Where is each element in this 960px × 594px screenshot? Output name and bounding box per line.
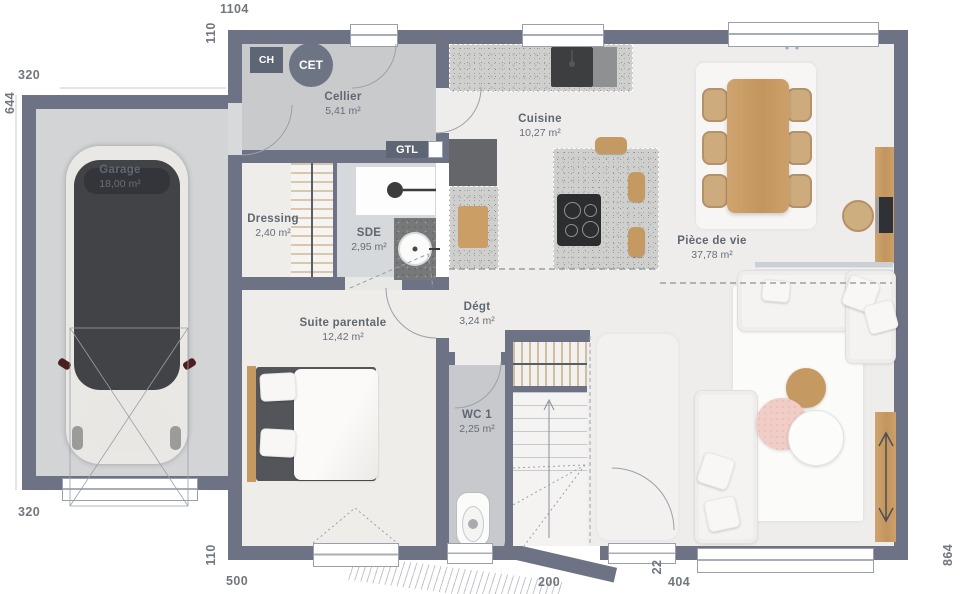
stairs-dashed-boundary [350,254,590,546]
spotlight-dots [786,47,799,50]
sideboard-arrows [879,433,893,521]
opening-direction-lines [313,465,585,546]
sink-faucet-icon [413,247,441,252]
door-arcs [242,44,674,530]
ceiling-dashed-lines [449,269,892,283]
floor-plan: CH CET GTL [0,0,960,594]
shower-head-icon [387,182,436,198]
parking-outline [70,328,188,506]
annotations-overlay [0,0,960,594]
kitchen-faucet-icon [569,50,575,67]
